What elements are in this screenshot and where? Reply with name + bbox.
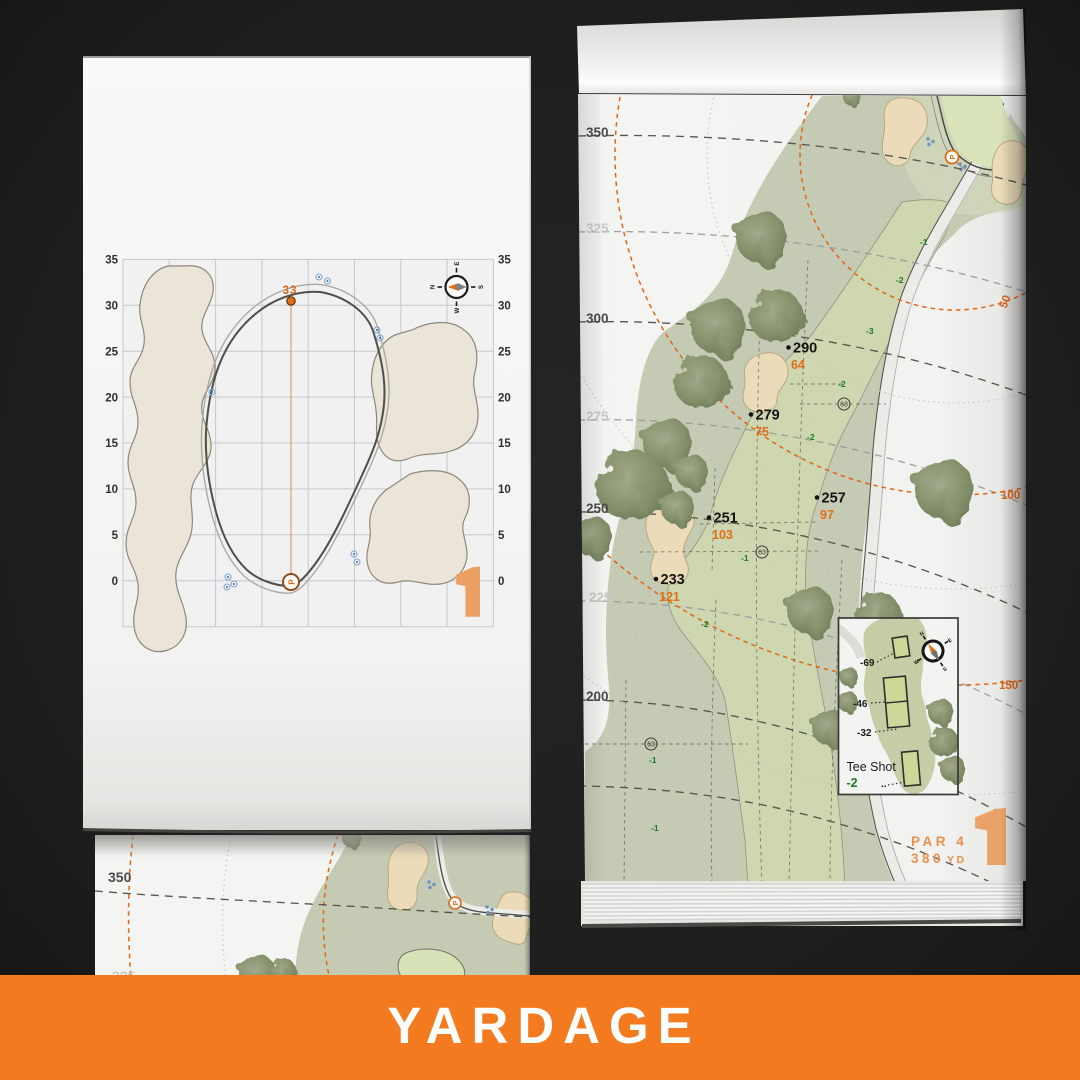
svg-text:30: 30: [498, 301, 511, 313]
svg-text:63: 63: [758, 550, 766, 557]
svg-text:0: 0: [498, 576, 504, 588]
svg-text:10: 10: [498, 484, 511, 496]
svg-text:-32: -32: [857, 728, 872, 739]
svg-text:15: 15: [498, 438, 511, 450]
svg-text:20: 20: [105, 392, 118, 404]
svg-text:33: 33: [283, 285, 298, 297]
svg-text:10: 10: [105, 484, 118, 496]
svg-text:5: 5: [112, 530, 119, 542]
svg-text:YD: YD: [947, 854, 967, 866]
svg-text:25: 25: [498, 346, 511, 358]
svg-text:-46: -46: [853, 699, 868, 710]
svg-text:233: 233: [661, 572, 685, 588]
svg-text:75: 75: [755, 425, 769, 439]
svg-text:-2: -2: [701, 619, 709, 629]
svg-text:-1: -1: [741, 553, 749, 563]
svg-text:15: 15: [105, 438, 118, 450]
svg-text:0: 0: [112, 576, 118, 588]
svg-text:P: P: [288, 579, 297, 585]
svg-text:-1: -1: [649, 755, 657, 765]
svg-text:-2: -2: [838, 379, 846, 389]
svg-text:97: 97: [820, 508, 834, 522]
svg-text:380: 380: [911, 851, 944, 866]
svg-text:257: 257: [822, 491, 846, 507]
svg-text:35: 35: [105, 255, 118, 267]
svg-text:-2: -2: [896, 275, 904, 285]
svg-text:-2: -2: [847, 776, 858, 790]
svg-text:121: 121: [659, 590, 680, 604]
svg-text:350: 350: [108, 869, 132, 885]
svg-text:E: E: [455, 261, 461, 265]
svg-text:279: 279: [756, 408, 780, 424]
svg-text:35: 35: [498, 255, 511, 267]
svg-text:63: 63: [840, 402, 848, 409]
svg-text:-1: -1: [920, 237, 928, 247]
svg-text:N: N: [431, 285, 437, 289]
svg-text:P: P: [950, 154, 957, 159]
svg-text:5: 5: [498, 530, 505, 542]
svg-text:64: 64: [791, 358, 805, 372]
svg-text:-3: -3: [866, 326, 874, 336]
svg-text:PAR 4: PAR 4: [911, 834, 967, 849]
svg-text:S: S: [479, 285, 485, 289]
svg-text:251: 251: [714, 511, 738, 527]
svg-text:63: 63: [647, 742, 655, 749]
svg-text:290: 290: [793, 341, 817, 357]
svg-text:-2: -2: [807, 432, 815, 442]
svg-text:-69: -69: [860, 658, 875, 669]
svg-text:30: 30: [105, 301, 118, 313]
svg-text:W: W: [455, 307, 461, 313]
svg-text:P: P: [453, 900, 460, 905]
svg-text:Tee Shot: Tee Shot: [847, 760, 897, 774]
svg-text:YARDAGE: YARDAGE: [387, 997, 700, 1054]
svg-text:..: ..: [881, 779, 887, 790]
svg-text:20: 20: [498, 392, 511, 404]
svg-text:103: 103: [712, 528, 733, 542]
svg-text:25: 25: [105, 346, 118, 358]
svg-text:-1: -1: [651, 823, 659, 833]
